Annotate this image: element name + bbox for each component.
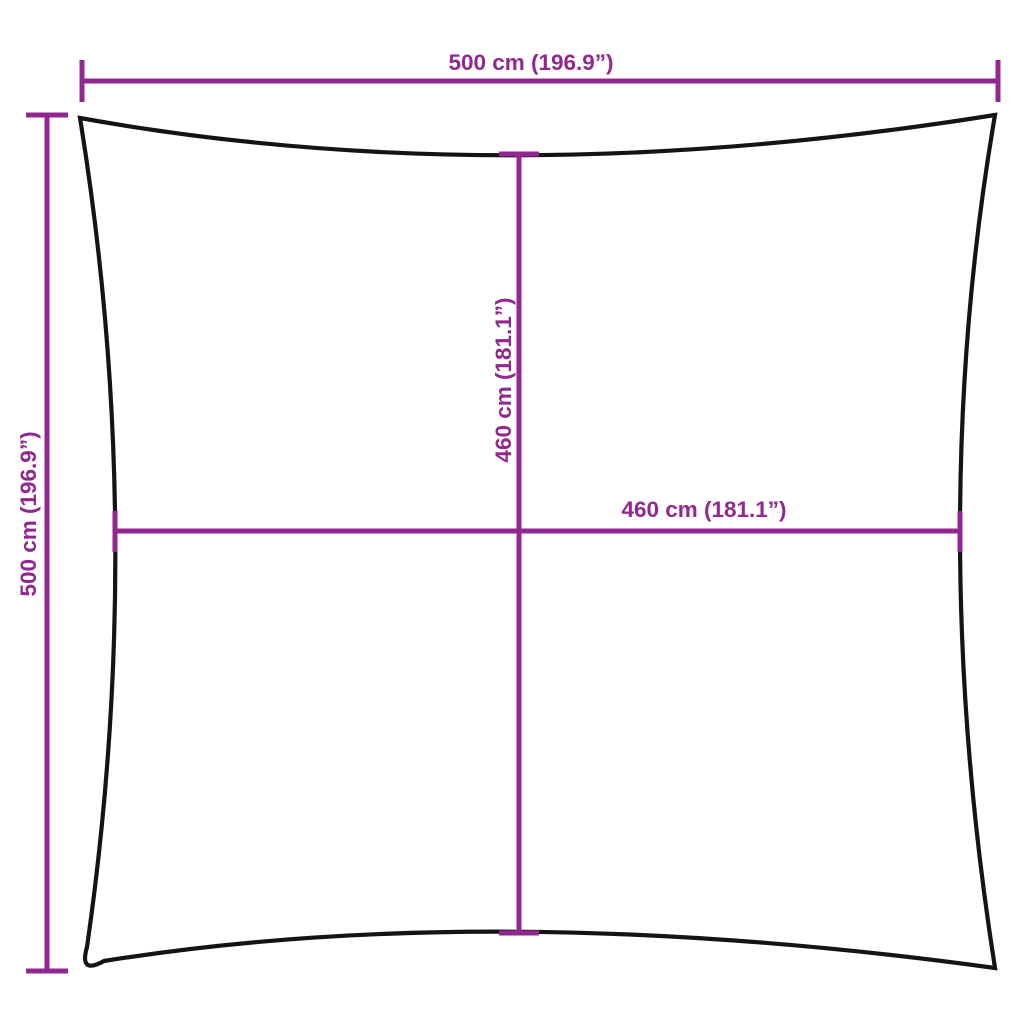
shade-sail-outline <box>80 115 995 968</box>
diagram-stage: 500 cm (196.9”) 500 cm (196.9”) 460 cm (… <box>0 0 1024 1024</box>
dimension-left-label: 500 cm (196.9”) <box>16 431 41 596</box>
shade-sail-dimension-diagram: 500 cm (196.9”) 500 cm (196.9”) 460 cm (… <box>0 0 1024 1024</box>
dimension-inner-vertical-label: 460 cm (181.1”) <box>491 297 516 462</box>
dimension-inner-horizontal-label: 460 cm (181.1”) <box>621 497 786 522</box>
dimension-lines <box>26 60 998 971</box>
dimension-labels: 500 cm (196.9”) 500 cm (196.9”) 460 cm (… <box>16 50 787 597</box>
dimension-inner-vertical <box>499 154 539 933</box>
dimension-top-label: 500 cm (196.9”) <box>448 50 613 75</box>
dimension-inner-horizontal <box>115 511 960 552</box>
